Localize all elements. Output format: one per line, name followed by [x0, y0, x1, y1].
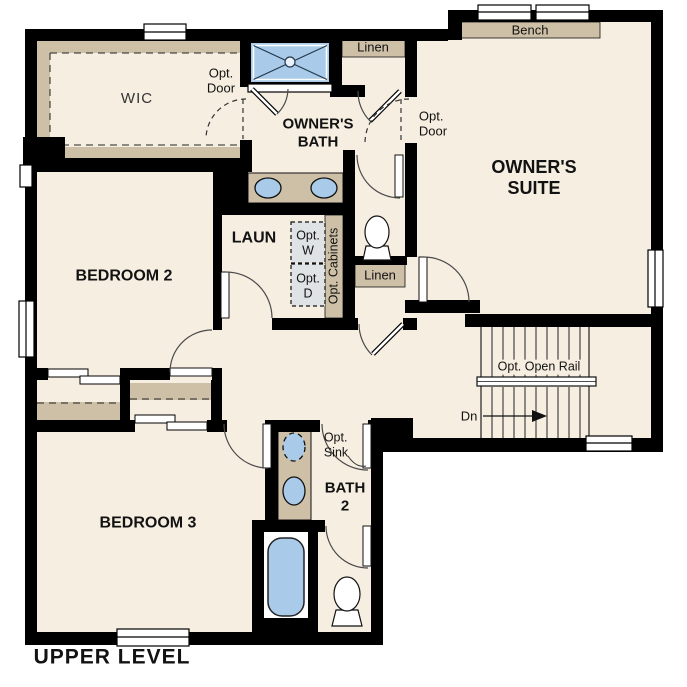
floor-plan-graphic: [0, 0, 687, 687]
window: [20, 165, 32, 187]
opt-washer-line1: Opt.: [296, 228, 320, 243]
owners-suite-line1: OWNER'S: [491, 157, 576, 178]
suite-door-leaf: [419, 257, 427, 302]
window: [117, 629, 189, 646]
window: [144, 24, 186, 40]
opt-sink-line2: Sink: [324, 445, 348, 460]
owners-suite-line2: SUITE: [491, 178, 576, 199]
toilet: [332, 577, 362, 626]
opt-washer-line2: W: [296, 243, 320, 258]
shower: [248, 42, 332, 92]
bath2-door-leaf: [363, 424, 371, 468]
owners-bath-line2: BATH: [282, 133, 353, 151]
bath2-line2: 2: [325, 497, 366, 515]
bath2-line1: BATH: [325, 479, 366, 497]
opt-door-wic-line2: Door: [207, 81, 235, 96]
opt-cabinets-label: Opt. Cabinets: [327, 228, 342, 304]
opt-door-wic-line1: Opt.: [207, 66, 235, 81]
toilet: [363, 216, 391, 260]
linen-hall-label: Linen: [364, 267, 396, 282]
wic-label: WIC: [121, 90, 153, 108]
opt-open-rail-label: Opt. Open Rail: [495, 360, 584, 375]
bedroom2-door-leaf: [170, 368, 212, 376]
bedroom3-closet-door: [167, 422, 207, 430]
owners-bath-label: OWNER'S BATH: [282, 115, 353, 150]
down-label: Dn: [461, 408, 478, 423]
window: [478, 5, 531, 20]
bath2-inner-door-leaf: [363, 526, 371, 566]
opt-door-suite-label: Opt. Door: [419, 109, 447, 140]
bedroom2-closet-shelf: [37, 402, 120, 420]
opt-washer-label: Opt. W: [296, 228, 320, 258]
owners-bath-line1: OWNER'S: [282, 115, 353, 133]
page-title: UPPER LEVEL: [34, 646, 191, 671]
wic-shelf-top: [37, 40, 240, 53]
opt-dryer-line1: Opt.: [296, 271, 320, 286]
window: [19, 301, 34, 357]
opt-dryer-line2: D: [296, 286, 320, 301]
bedroom2-label: BEDROOM 2: [76, 268, 173, 287]
opt-sink-line1: Opt.: [324, 430, 348, 445]
opt-door-suite-line1: Opt.: [419, 109, 447, 124]
owners-suite-label: OWNER'S SUITE: [491, 157, 576, 199]
bath2-label: BATH 2: [325, 479, 366, 514]
bench-label: Bench: [512, 22, 549, 37]
bedroom3-door-leaf: [263, 424, 271, 468]
window: [586, 436, 632, 451]
window: [536, 5, 589, 20]
sink: [311, 178, 337, 198]
sink: [283, 477, 305, 505]
wic-shelf-left: [37, 53, 50, 137]
opt-sink-label: Opt. Sink: [324, 430, 348, 460]
window: [648, 250, 663, 307]
bathtub: [268, 538, 304, 616]
shower-curb: [248, 84, 332, 92]
opt-door-suite-line2: Door: [419, 124, 447, 139]
laundry-label: LAUN: [232, 230, 276, 249]
linen-upper-label: Linen: [357, 39, 389, 54]
laundry-door-leaf: [221, 272, 229, 318]
opt-sink: [283, 433, 305, 461]
bedroom3-label: BEDROOM 3: [100, 515, 197, 534]
bedroom3-closet-shelf: [130, 383, 211, 400]
wic-shelf-bottom: [65, 147, 240, 158]
wc-door-leaf: [395, 155, 403, 197]
floor-plan: WIC Opt. Door OWNER'S BATH Linen Bench O…: [0, 0, 687, 687]
sink: [255, 178, 281, 198]
opt-door-wic-label: Opt. Door: [207, 66, 235, 97]
bedroom2-closet-door: [80, 376, 120, 384]
opt-dryer-label: Opt. D: [296, 271, 320, 301]
